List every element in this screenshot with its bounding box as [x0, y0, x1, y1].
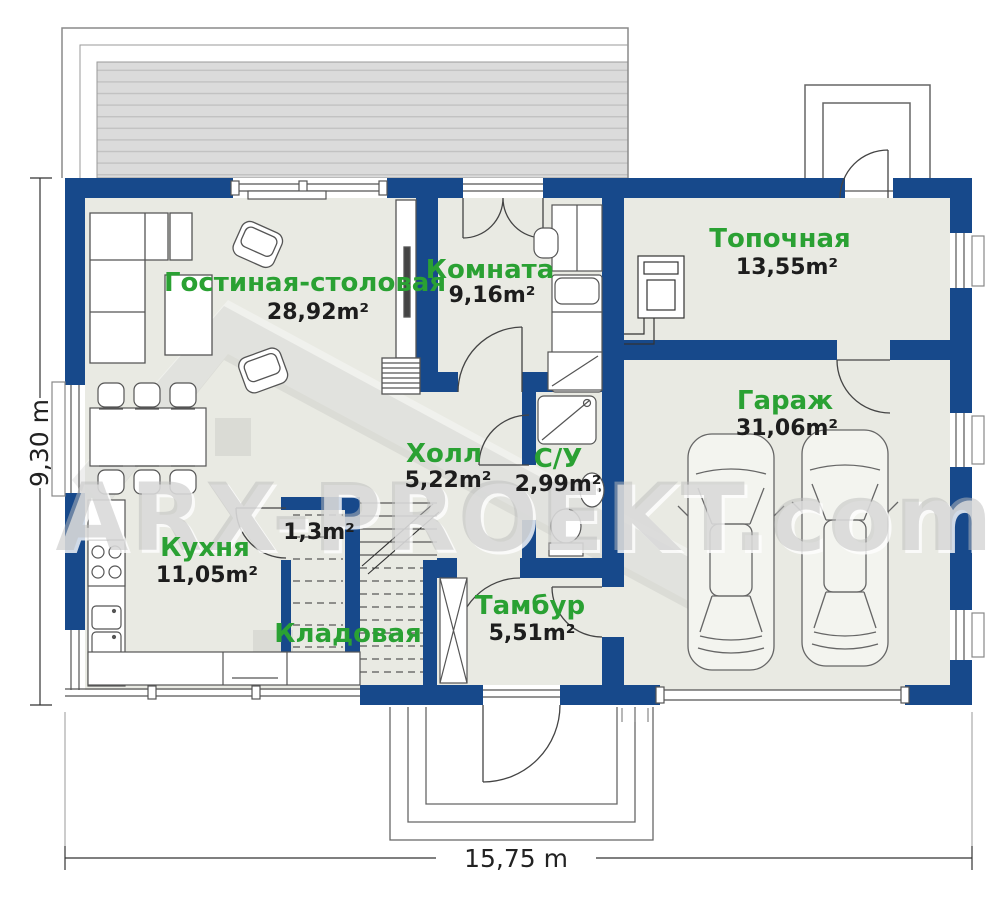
label-hall-name: Холл: [406, 439, 482, 469]
floor-plan: ARX-PROEKT.com ARX-PROEKT.com Гостиная-с…: [0, 0, 1008, 900]
label-storage-name: Кладовая: [274, 619, 421, 649]
floor-plan-page: ARX-PROEKT.com ARX-PROEKT.com Гостиная-с…: [0, 0, 1008, 900]
dimension-height-text: 9,30 m: [25, 399, 54, 487]
label-kitchen-area: 11,05m²: [156, 563, 258, 588]
label-living-name: Гостиная-столовая: [164, 268, 446, 298]
label-garage-area: 31,06m²: [736, 416, 838, 441]
label-closet-area: 1,3m²: [283, 520, 355, 545]
side-table: [170, 213, 192, 260]
entrance-porch: [390, 707, 653, 840]
dimension-height: 9,30 m: [25, 178, 54, 705]
sink: [92, 606, 121, 629]
label-hall-area: 5,22m²: [405, 468, 492, 493]
dining-table: [90, 408, 206, 466]
vestibule-wardrobe: [440, 578, 467, 683]
label-living-area: 28,92m²: [267, 300, 369, 325]
pillow: [555, 278, 599, 304]
dimension-width-text: 15,75 m: [464, 844, 568, 873]
nightstand: [534, 228, 558, 258]
label-vestibule-area: 5,51m²: [489, 621, 576, 646]
label-wc-name: С/У: [534, 444, 583, 474]
kitchen-counter-bottom: [88, 652, 360, 685]
label-vestibule-name: Тамбур: [475, 591, 585, 621]
label-boiler-name: Топочная: [709, 224, 850, 254]
label-bedroom-area: 9,16m²: [449, 283, 536, 308]
label-wc-area: 2,99m²: [515, 472, 602, 497]
terrace: [62, 28, 628, 178]
label-kitchen-name: Кухня: [160, 533, 250, 563]
label-bedroom-name: Комната: [426, 255, 555, 285]
label-boiler-area: 13,55m²: [736, 255, 838, 280]
label-garage-name: Гараж: [737, 386, 833, 416]
